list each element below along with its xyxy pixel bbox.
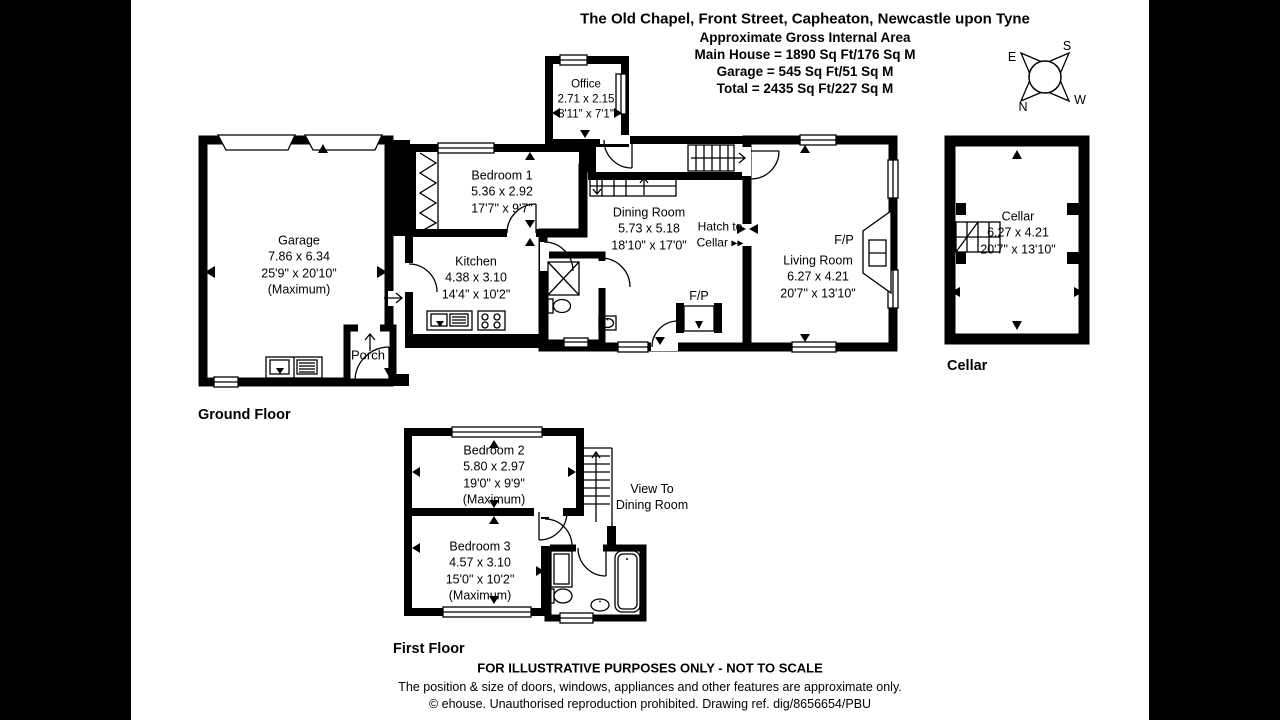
room-name: Bedroom 3 (446, 539, 515, 555)
cellar-room-label: Cellar 6.27 x 4.21 20'7" x 13'10" (980, 209, 1056, 258)
hob-icon (478, 311, 505, 330)
porch-label: Porch (351, 348, 385, 365)
view-line2: Dining Room (616, 497, 688, 513)
room-name: Porch (351, 348, 385, 365)
compass-rose-icon (1021, 53, 1069, 101)
room-name: Bedroom 1 (471, 168, 533, 184)
first-floor-label: First Floor (393, 641, 465, 657)
letterbox-left (0, 0, 131, 720)
room-name: Cellar (980, 209, 1056, 225)
plan-subtitle: Approximate Gross Internal Area (699, 29, 910, 47)
area-main-house: Main House = 1890 Sq Ft/176 Sq M (695, 46, 916, 64)
room-name: Bedroom 2 (463, 443, 526, 459)
floorplan-page: The Old Chapel, Front Street, Capheaton,… (0, 0, 1280, 720)
plan-title: The Old Chapel, Front Street, Capheaton,… (580, 9, 1030, 29)
room-name: Office (558, 78, 615, 93)
office-label: Office 2.71 x 2.15 8'11" x 7'1" (558, 78, 615, 123)
bedroom3-label: Bedroom 3 4.57 x 3.10 15'0" x 10'2" (Max… (446, 539, 515, 604)
room-imperial: 17'7" x 9'7" (471, 200, 533, 216)
room-name: Garage (261, 233, 337, 249)
room-note: (Maximum) (463, 491, 526, 507)
dining-room-label: Dining Room 5.73 x 5.18 18'10" x 17'0" (611, 205, 687, 254)
room-imperial: 14'4" x 10'2" (442, 286, 511, 302)
fireplace-dining-label: F/P (689, 288, 708, 304)
room-metric: 4.38 x 3.10 (442, 270, 511, 286)
room-note: (Maximum) (261, 281, 337, 297)
room-metric: 6.27 x 4.21 (780, 269, 856, 285)
double-arrow-icon: ▸▸ (731, 235, 743, 249)
bedroom2-label: Bedroom 2 5.80 x 2.97 19'0" x 9'9" (Maxi… (463, 443, 526, 508)
fireplace-living-label: F/P (834, 232, 853, 248)
room-metric: 5.36 x 2.92 (471, 184, 533, 200)
room-imperial: 15'0" x 10'2" (446, 571, 515, 587)
room-imperial: 20'7" x 13'10" (780, 285, 856, 301)
area-total: Total = 2435 Sq Ft/227 Sq M (717, 80, 893, 98)
room-metric: 7.86 x 6.34 (261, 249, 337, 265)
room-metric: 2.71 x 2.15 (558, 93, 615, 108)
room-metric: 4.57 x 3.10 (446, 555, 515, 571)
room-imperial: 8'11" x 7'1" (558, 107, 615, 122)
hatch-line1: Hatch to (697, 219, 744, 235)
room-metric: 5.73 x 5.18 (611, 221, 687, 237)
room-imperial: 20'7" x 13'10" (980, 241, 1056, 257)
compass-south: S (1063, 38, 1071, 54)
room-imperial: 18'10" x 17'0" (611, 237, 687, 253)
footer-approximate-note: The position & size of doors, windows, a… (398, 679, 902, 695)
compass-west: W (1074, 92, 1086, 108)
ff-bathroom (548, 548, 643, 618)
kitchen-sink-icon (427, 311, 472, 330)
room-name: Dining Room (611, 205, 687, 221)
view-line1: View To (616, 481, 688, 497)
room-name: Living Room (780, 253, 856, 269)
living-room-label: Living Room 6.27 x 4.21 20'7" x 13'10" (780, 253, 856, 302)
footer-copyright: © ehouse. Unauthorised reproduction proh… (429, 696, 871, 712)
compass-north: N (1018, 99, 1027, 115)
letterbox-right (1149, 0, 1280, 720)
fireplace-dining-icon (676, 303, 722, 333)
room-name: Kitchen (442, 254, 511, 270)
kitchen-label: Kitchen 4.38 x 3.10 14'4" x 10'2" (442, 254, 511, 303)
area-garage: Garage = 545 Sq Ft/51 Sq M (717, 63, 894, 81)
compass-east: E (1008, 49, 1016, 65)
room-imperial: 25'9" x 20'10" (261, 265, 337, 281)
ground-floor-label: Ground Floor (198, 407, 291, 423)
view-to-dining-label: View To Dining Room (616, 481, 688, 514)
room-metric: 5.80 x 2.97 (463, 459, 526, 475)
room-metric: 6.27 x 4.21 (980, 225, 1056, 241)
room-note: (Maximum) (446, 587, 515, 603)
hatch-to-cellar-label: Hatch to Cellar ▸▸ (697, 219, 744, 250)
footer-disclaimer: FOR ILLUSTRATIVE PURPOSES ONLY - NOT TO … (477, 661, 823, 678)
floorplan-drawing (0, 0, 1280, 720)
appliance-icon (266, 357, 322, 378)
hatch-line2: Cellar ▸▸ (697, 235, 744, 251)
cellar-floor-label: Cellar (947, 358, 987, 374)
bedroom1-label: Bedroom 1 5.36 x 2.92 17'7" x 9'7" (471, 168, 533, 217)
garage-label: Garage 7.86 x 6.34 25'9" x 20'10" (Maxim… (261, 233, 337, 298)
room-imperial: 19'0" x 9'9" (463, 475, 526, 491)
staircase-icon (580, 448, 616, 550)
first-floor-plan (408, 427, 643, 623)
ground-floor-plan (203, 55, 898, 387)
